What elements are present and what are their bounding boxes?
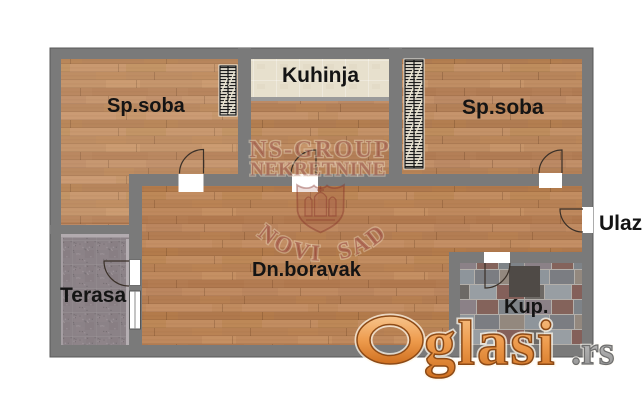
svg-text:Ulaz: Ulaz xyxy=(599,212,642,235)
svg-text:glasi: glasi xyxy=(424,308,557,378)
svg-text:Sp.soba: Sp.soba xyxy=(107,95,186,117)
svg-text:.rs: .rs xyxy=(571,328,614,373)
svg-text:NEKRETNINE: NEKRETNINE xyxy=(250,160,386,181)
svg-text:Sp.soba: Sp.soba xyxy=(462,96,544,119)
svg-text:Terasa: Terasa xyxy=(60,284,126,307)
svg-text:Kuhinja: Kuhinja xyxy=(282,64,359,87)
